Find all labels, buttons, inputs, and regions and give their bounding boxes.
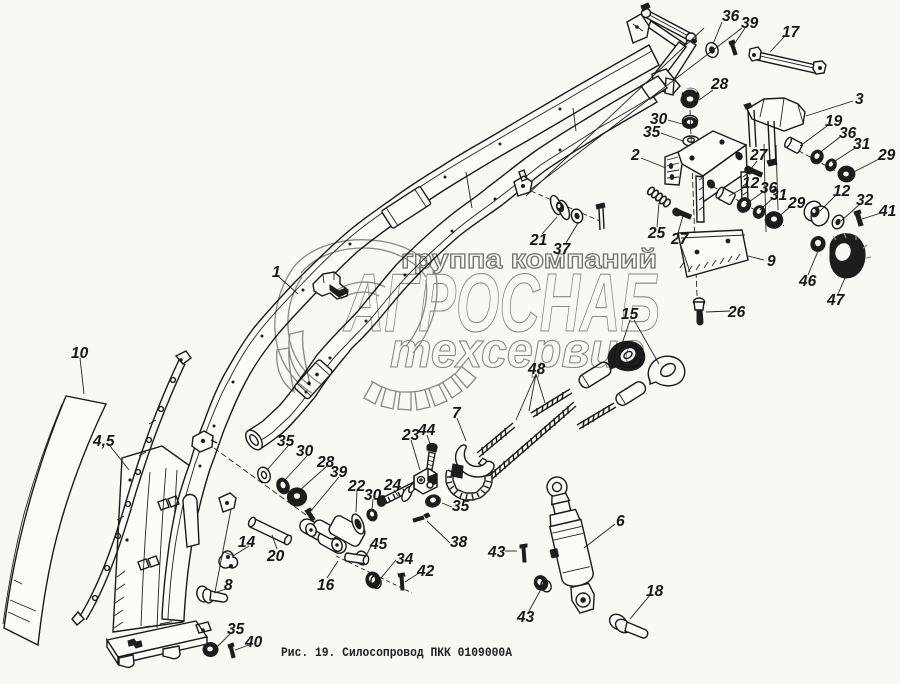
svg-text:29: 29: [877, 147, 896, 164]
svg-text:4,5: 4,5: [92, 433, 115, 450]
svg-text:44: 44: [417, 422, 436, 439]
svg-text:16: 16: [317, 577, 335, 594]
svg-text:25: 25: [647, 225, 666, 242]
svg-text:22: 22: [347, 478, 366, 495]
svg-text:21: 21: [529, 232, 547, 249]
svg-text:14: 14: [238, 534, 256, 551]
svg-text:31: 31: [853, 136, 870, 153]
svg-text:43: 43: [487, 544, 506, 561]
svg-text:15: 15: [621, 306, 639, 323]
svg-text:35: 35: [452, 498, 470, 515]
svg-text:18: 18: [646, 583, 664, 600]
svg-text:1: 1: [272, 264, 281, 281]
svg-text:23: 23: [401, 427, 420, 444]
svg-text:26: 26: [727, 304, 746, 321]
svg-text:45: 45: [369, 536, 388, 553]
svg-text:2: 2: [630, 147, 640, 164]
svg-text:39: 39: [330, 464, 348, 481]
svg-text:35: 35: [643, 124, 661, 141]
svg-text:30: 30: [296, 443, 314, 460]
svg-text:29: 29: [787, 195, 806, 212]
svg-text:48: 48: [527, 361, 546, 378]
svg-text:39: 39: [741, 15, 759, 32]
svg-text:37: 37: [553, 241, 572, 258]
svg-text:7: 7: [452, 405, 462, 422]
svg-text:42: 42: [416, 563, 435, 580]
svg-text:46: 46: [798, 273, 817, 290]
svg-text:32: 32: [856, 192, 874, 209]
svg-text:43: 43: [516, 609, 535, 626]
svg-text:9: 9: [767, 253, 776, 270]
svg-text:6: 6: [616, 513, 625, 530]
svg-text:27: 27: [670, 231, 690, 248]
svg-text:20: 20: [266, 548, 285, 565]
svg-text:12: 12: [833, 183, 851, 200]
svg-text:10: 10: [71, 345, 89, 362]
svg-text:38: 38: [450, 534, 468, 551]
svg-text:27: 27: [749, 147, 769, 164]
svg-text:техсервис: техсервис: [390, 324, 644, 378]
svg-text:8: 8: [224, 577, 233, 594]
svg-text:35: 35: [227, 621, 245, 638]
svg-text:34: 34: [396, 551, 414, 568]
svg-text:24: 24: [383, 477, 402, 494]
svg-text:17: 17: [782, 24, 801, 41]
svg-text:40: 40: [244, 634, 263, 651]
svg-text:41: 41: [878, 203, 896, 220]
svg-text:36: 36: [722, 8, 740, 25]
svg-text:12: 12: [742, 175, 760, 192]
svg-text:3: 3: [855, 91, 864, 108]
svg-text:Рис. 19. Силосопровод ПКК 010: Рис. 19. Силосопровод ПКК 0109000А: [281, 645, 512, 660]
svg-text:47: 47: [826, 292, 846, 309]
svg-text:35: 35: [277, 433, 295, 450]
svg-text:30: 30: [364, 487, 382, 504]
svg-text:28: 28: [710, 76, 729, 93]
svg-text:31: 31: [770, 187, 787, 204]
